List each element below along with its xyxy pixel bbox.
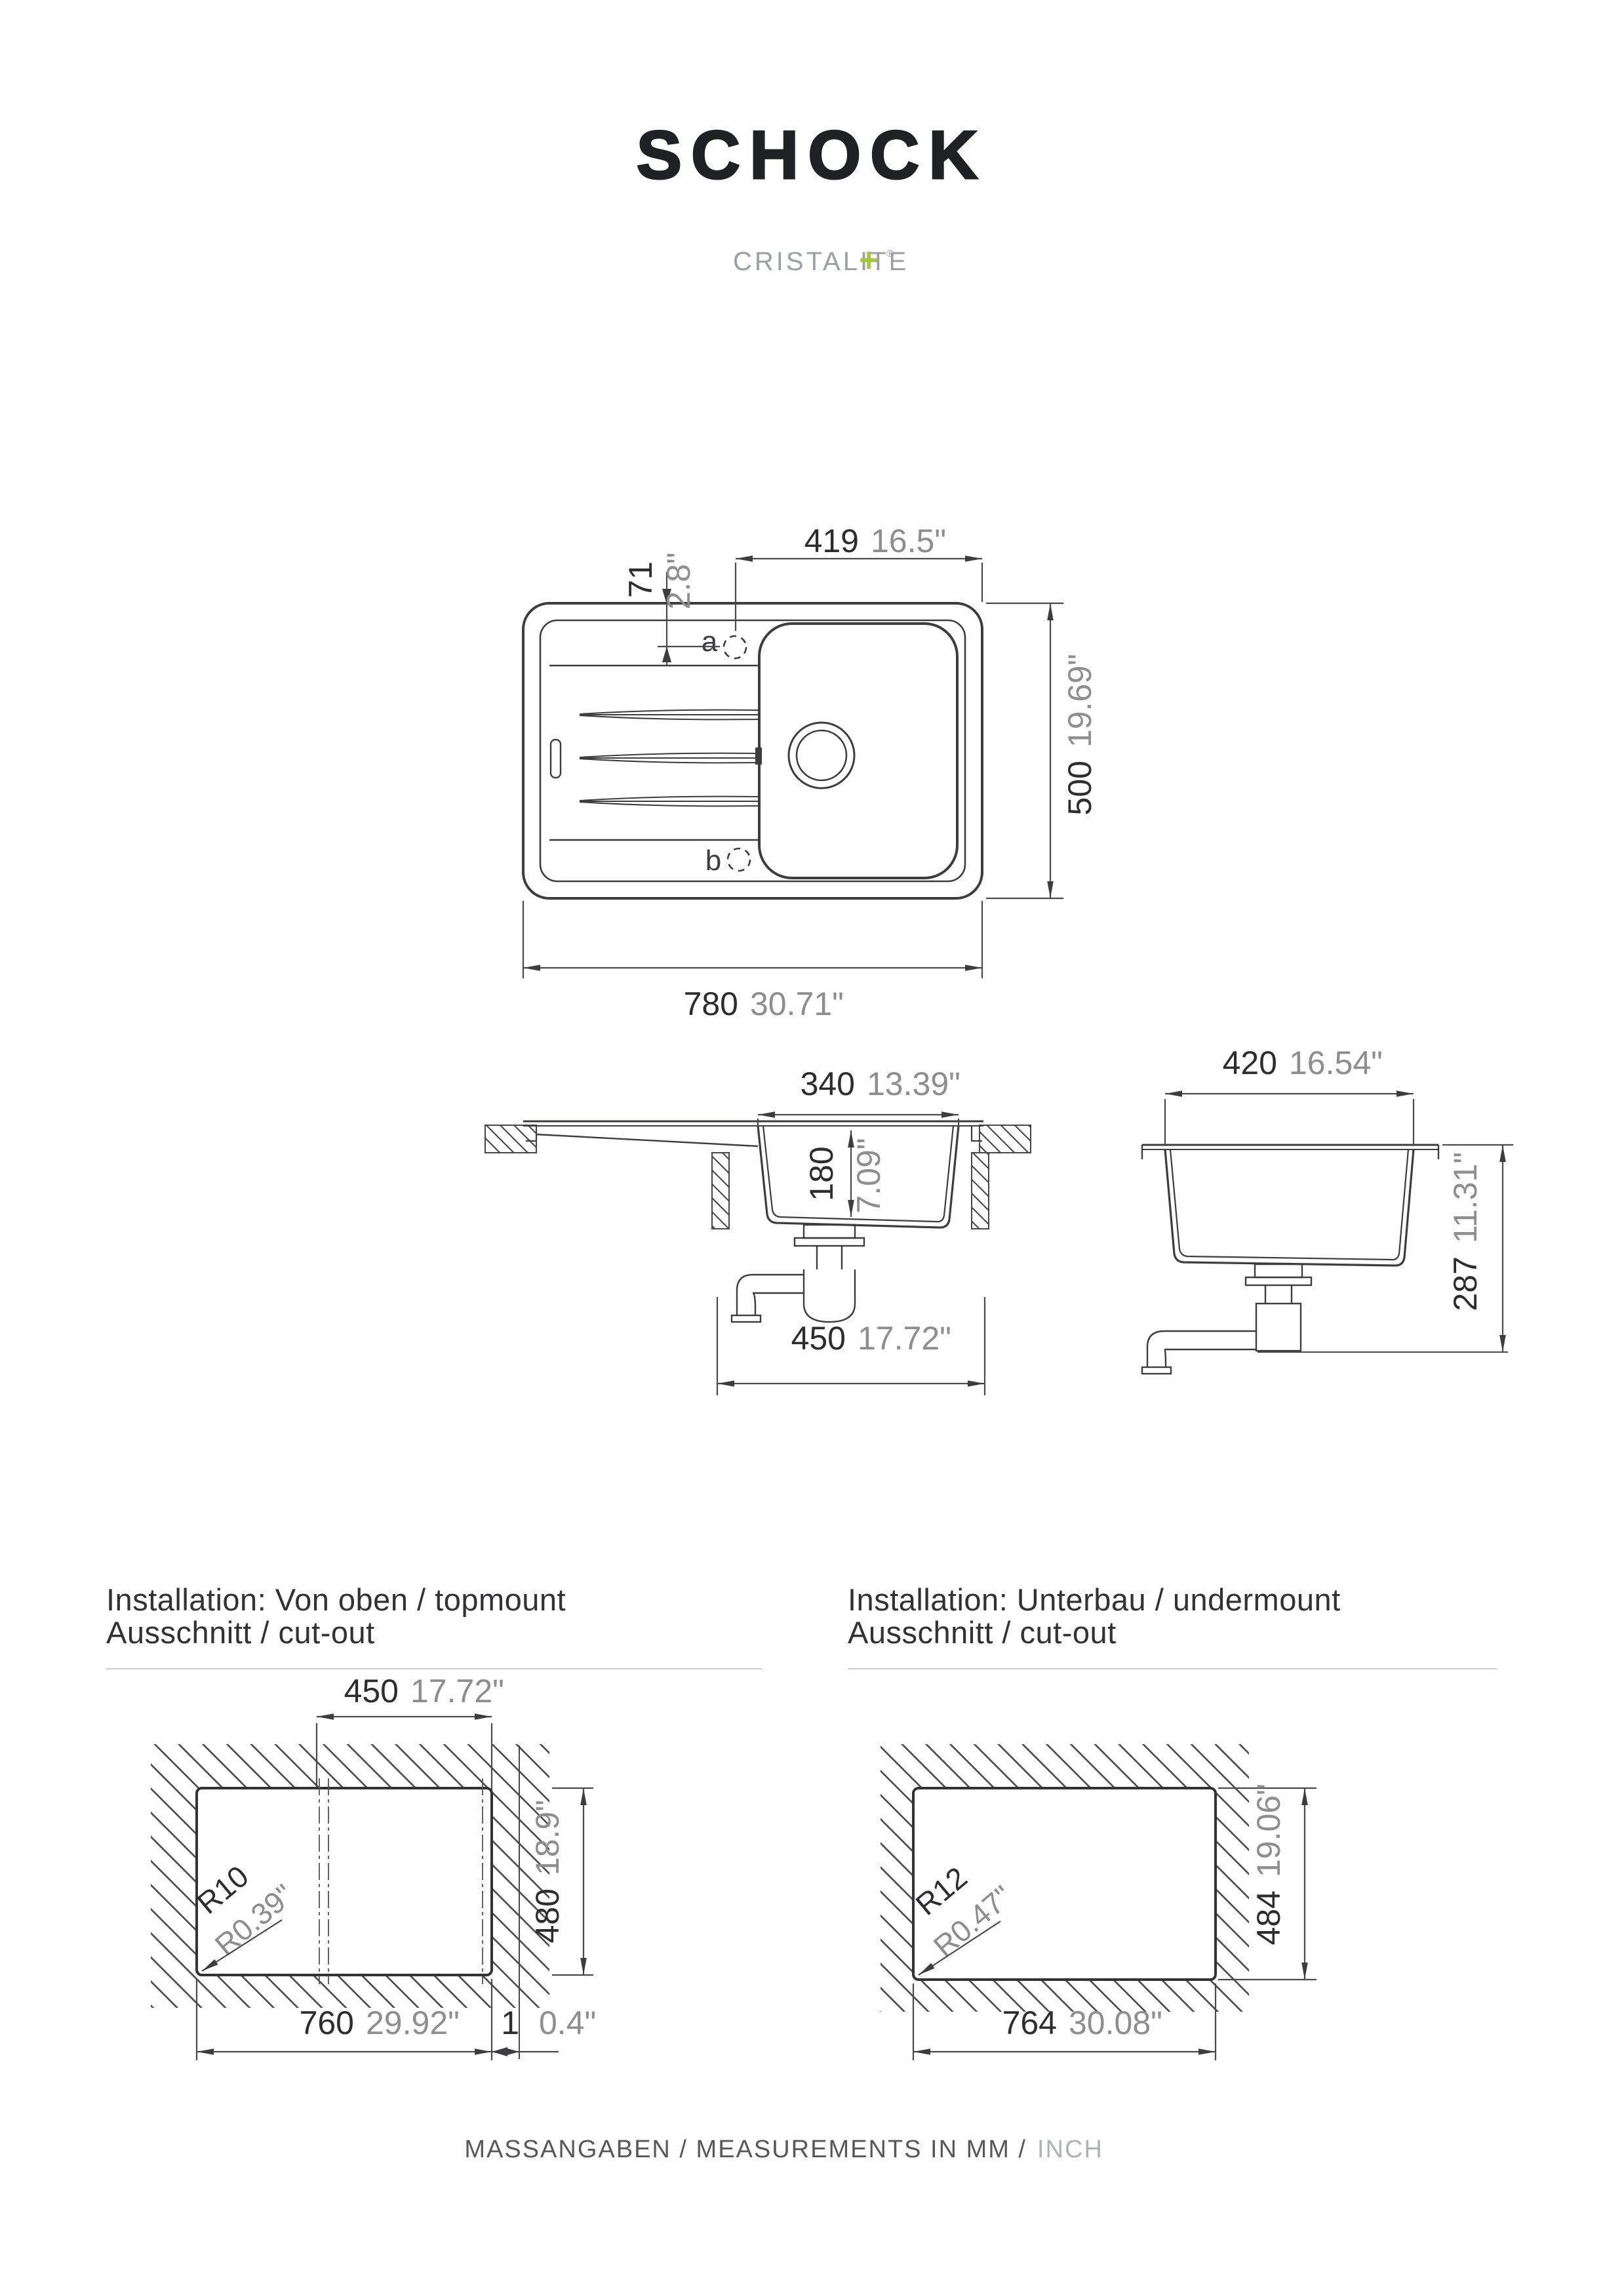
dim-340-mm: 340	[801, 1066, 855, 1102]
dim-480-inch: 18.9"	[529, 1800, 566, 1875]
dim-760-inch: 29.92"	[366, 2005, 460, 2041]
drain-trap-front	[732, 1225, 864, 1322]
topmount-title-line2: Ausschnitt / cut-out	[106, 1615, 375, 1650]
dim-480-mm: 480	[529, 1888, 566, 1943]
dim-287-mm: 287	[1447, 1256, 1484, 1311]
dim-450-inch: 17.72"	[858, 1320, 951, 1357]
dim-180-inch: 7.09"	[850, 1138, 887, 1213]
dim-287-inch: 11.31"	[1447, 1152, 1484, 1243]
brand-header: SCHOCK CRISTALITE + ®	[637, 117, 987, 279]
dim-780-mm: 780	[684, 986, 738, 1022]
bowl-cross-inner	[1170, 1149, 1408, 1260]
front-section-drawing: 340 13.39" 180 7.09" 450 17.72"	[485, 1066, 1031, 1395]
dim-450-cabinet: 450 17.72"	[717, 1297, 985, 1395]
dim-71-inch: 2.8"	[660, 552, 697, 609]
dim-420-mm: 420	[1223, 1045, 1277, 1081]
tap-hole-b-circle	[728, 848, 750, 871]
sink-outer-outline	[523, 603, 982, 898]
dim-780: 780 30.71"	[523, 901, 982, 1022]
footer-text-primary: MASSANGABEN / MEASUREMENTS IN MM /	[464, 2136, 1027, 2163]
drainboard-grooves	[580, 710, 759, 807]
dim-edge-mm: 1	[501, 2005, 519, 2041]
dim-419-inch: 16.5"	[871, 523, 946, 559]
dim-484-inch: 19.06"	[1250, 1784, 1287, 1877]
dim-topmount-450-inch: 17.72"	[410, 1673, 504, 1709]
cross-section-drawing: 420 16.54" 287 11.31"	[1142, 1045, 1513, 1374]
material-plus-icon: +	[859, 241, 879, 279]
dim-180-mm: 180	[803, 1146, 840, 1201]
material-name: CRISTALITE	[733, 247, 909, 276]
counter-block-left	[485, 1125, 536, 1153]
dim-edge-offset: 1 0.4"	[492, 2005, 596, 2056]
counter-block-right	[980, 1125, 1031, 1153]
tap-hole-a-label: a	[702, 626, 718, 658]
dim-500-mm: 500	[1061, 761, 1098, 815]
dim-180: 180 7.09"	[803, 1130, 887, 1217]
dim-484-mm: 484	[1250, 1890, 1287, 1945]
cabinet-panel-right	[972, 1153, 989, 1229]
footer: MASSANGABEN / MEASUREMENTS IN MM / INCH	[464, 2136, 1103, 2163]
dim-780-inch: 30.71"	[750, 986, 844, 1022]
dim-topmount-450-mm: 450	[344, 1673, 399, 1709]
brand-logo: SCHOCK	[637, 117, 987, 193]
groove-bowl-tick	[755, 748, 762, 765]
drainboard-underside	[536, 1134, 758, 1146]
dim-760-mm: 760	[300, 2005, 354, 2041]
dim-287: 287 11.31"	[1442, 1145, 1513, 1352]
tap-hole-b-label: b	[705, 845, 721, 877]
bowl-cross-outer	[1165, 1149, 1414, 1266]
dim-340: 340 13.39"	[758, 1066, 961, 1127]
drain-outer-circle	[789, 723, 854, 788]
topmount-title-line1: Installation: Von oben / topmount	[106, 1582, 566, 1617]
dim-450-mm: 450	[791, 1320, 846, 1357]
dim-500-inch: 19.69"	[1061, 654, 1098, 748]
overflow-slot	[551, 740, 561, 778]
drain-inner-circle	[797, 730, 846, 780]
dim-edge-inch: 0.4"	[539, 2005, 596, 2041]
datasheet-canvas: SCHOCK CRISTALITE + ® a b 419 16.5"	[0, 0, 1624, 2295]
tap-hole-a-circle	[724, 636, 746, 658]
undermount-section: Installation: Unterbau / undermount Auss…	[848, 1582, 1497, 2060]
dim-71-mm: 71	[622, 561, 659, 598]
dim-419: 419 16.5"	[736, 523, 982, 631]
dim-419-mm: 419	[804, 523, 859, 559]
dim-764-inch: 30.08"	[1069, 2005, 1162, 2041]
sink-rim-inner	[540, 620, 965, 881]
undermount-title-line1: Installation: Unterbau / undermount	[848, 1582, 1341, 1617]
dim-764-mm: 764	[1002, 2005, 1057, 2041]
dim-420-inch: 16.54"	[1289, 1045, 1383, 1081]
dim-420: 420 16.54"	[1165, 1045, 1414, 1145]
undermount-title-line2: Ausschnitt / cut-out	[848, 1615, 1117, 1650]
top-view-drawing: a b 419 16.5" 71 2.8" 500 19.69"	[523, 523, 1098, 1022]
registered-mark: ®	[886, 249, 894, 260]
dim-500: 500 19.69"	[986, 603, 1098, 898]
footer-text-secondary: INCH	[1037, 2136, 1103, 2163]
cabinet-panel-left	[712, 1153, 729, 1229]
topmount-section: Installation: Von oben / topmount Aussch…	[106, 1582, 762, 2060]
dim-340-inch: 13.39"	[867, 1066, 961, 1102]
